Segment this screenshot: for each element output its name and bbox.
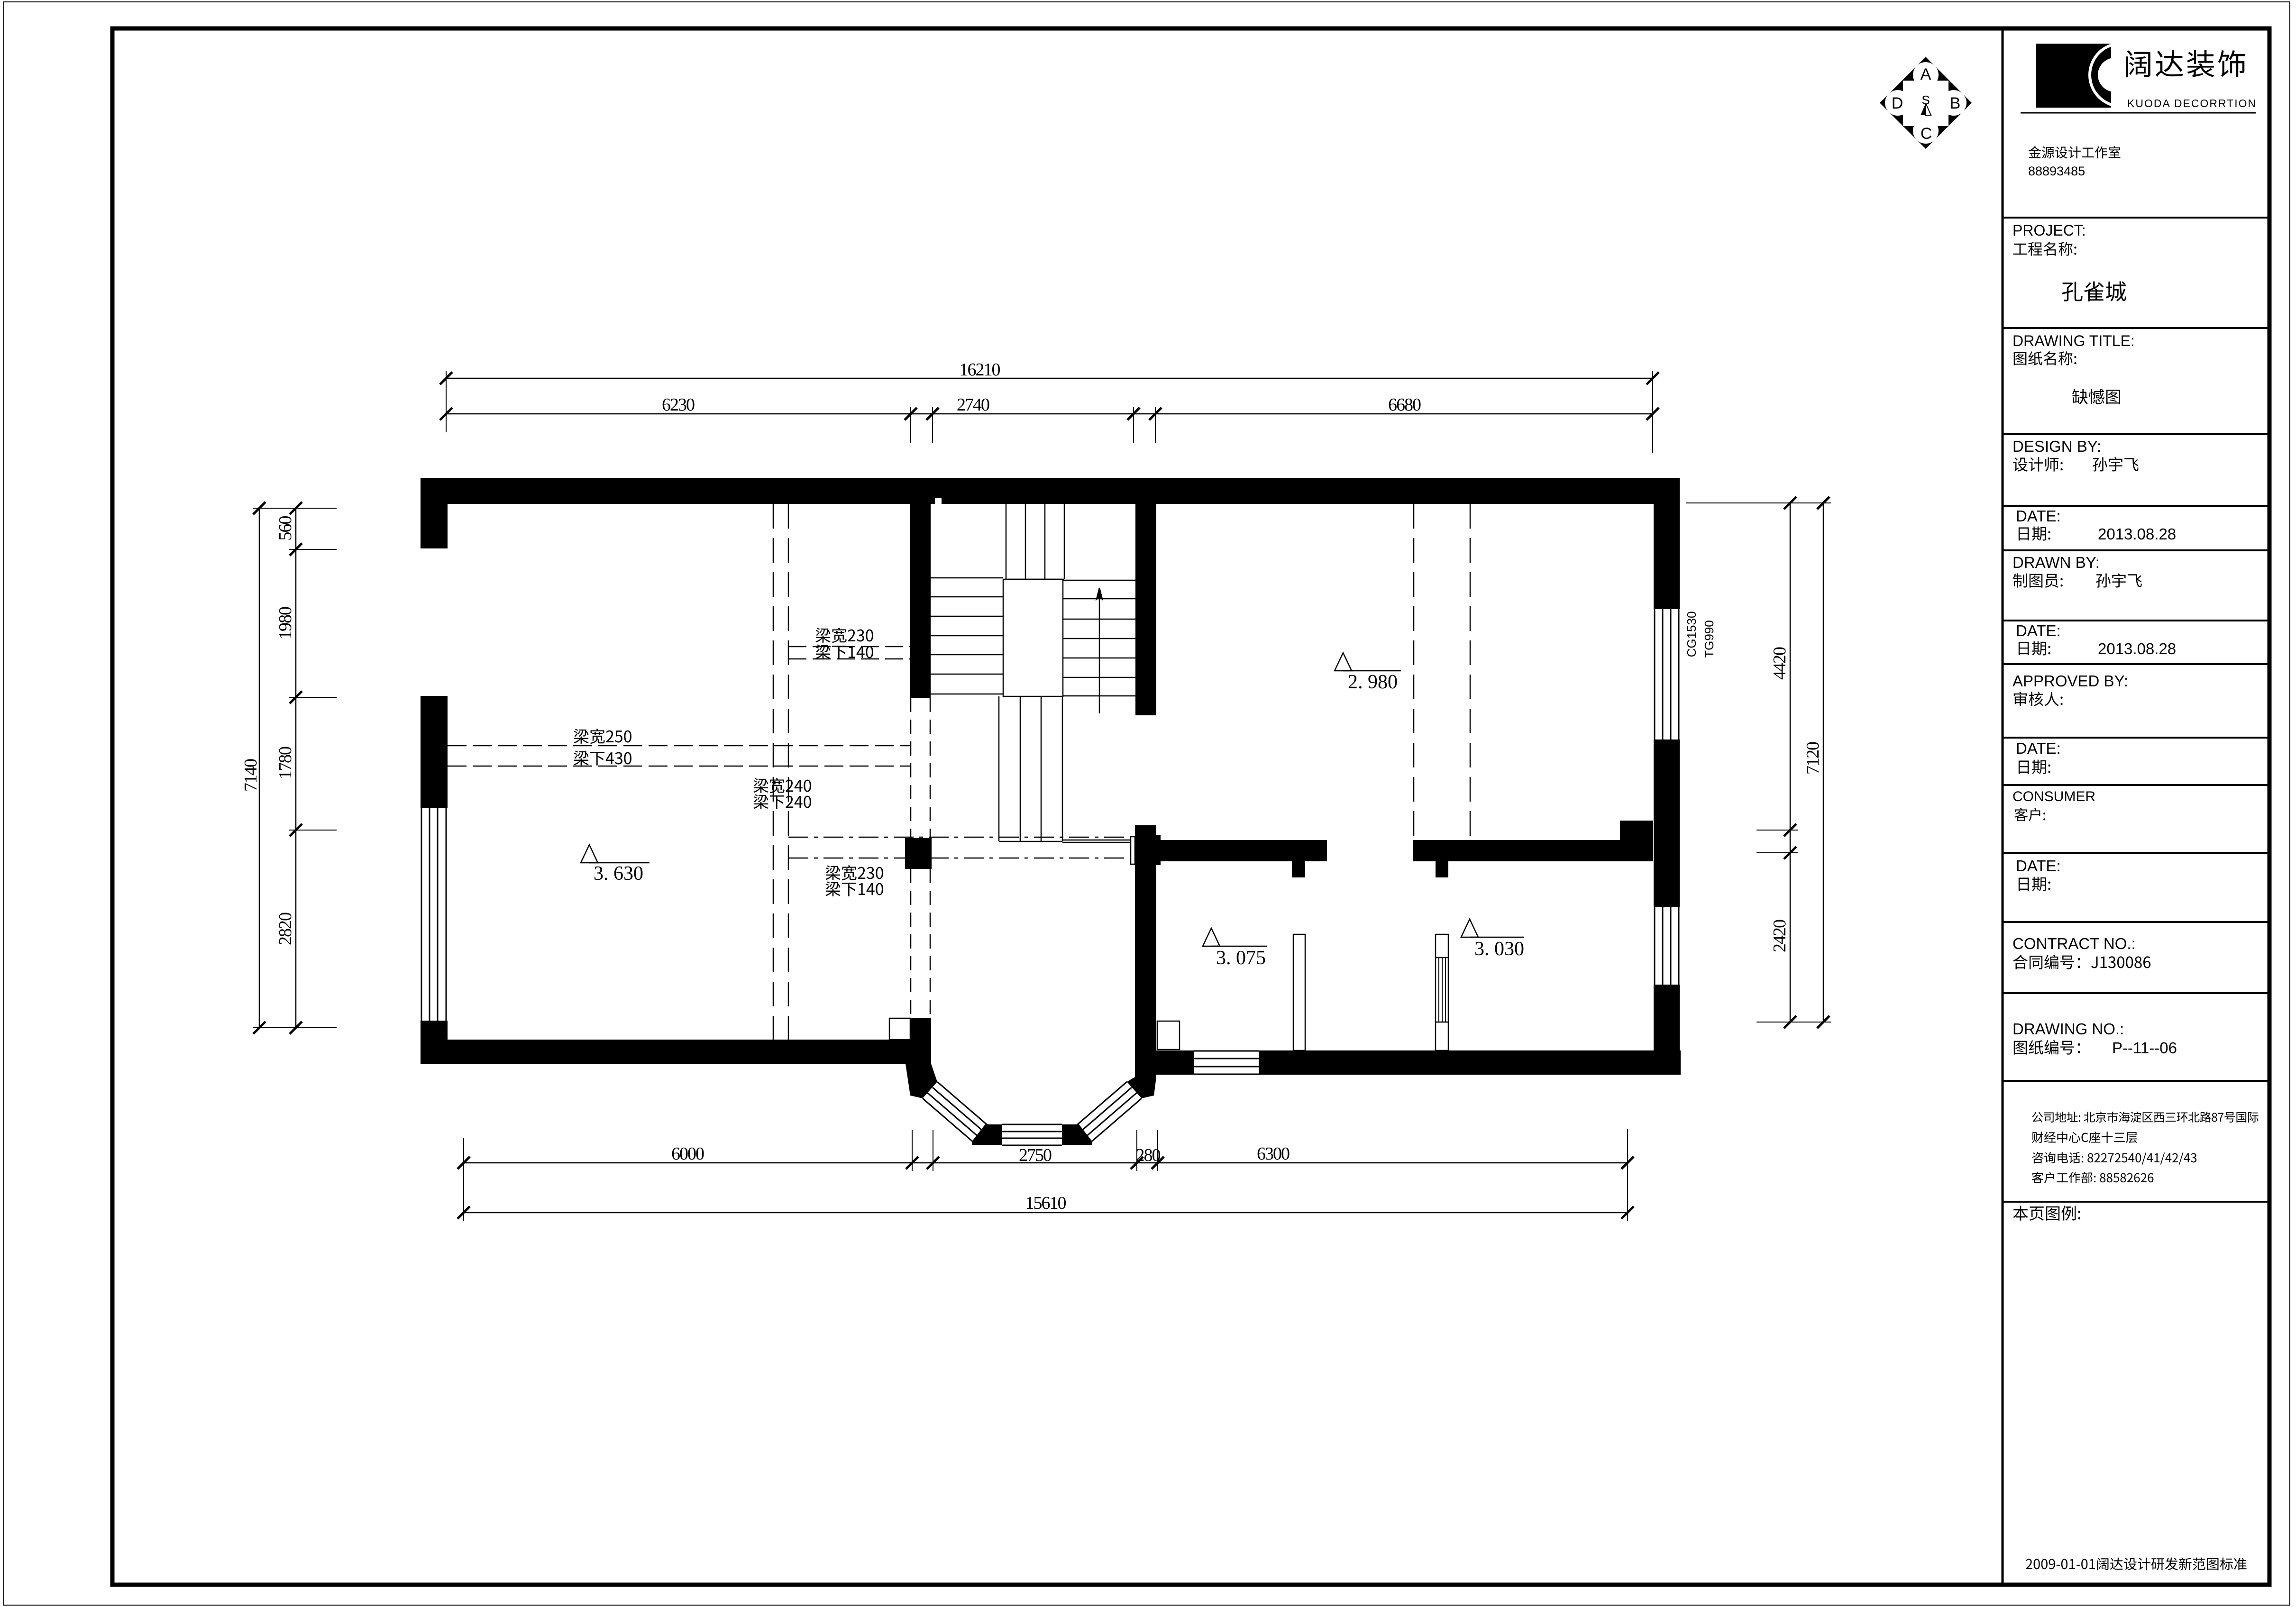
svg-text:CG1530: CG1530 [1684, 612, 1699, 657]
svg-text:CONSUMER: CONSUMER [2012, 789, 2095, 804]
svg-text:1780: 1780 [275, 747, 295, 779]
svg-text:DATE:: DATE: [2016, 857, 2061, 875]
svg-text:PROJECT:: PROJECT: [2012, 222, 2086, 239]
svg-text:C: C [1921, 125, 1932, 143]
svg-text:3. 030: 3. 030 [1474, 938, 1524, 960]
svg-text:3. 075: 3. 075 [1216, 947, 1266, 969]
svg-text:2750: 2750 [1019, 1145, 1052, 1165]
svg-text:280: 280 [1136, 1145, 1161, 1165]
svg-text:88893485: 88893485 [2028, 164, 2085, 178]
svg-text:DATE:: DATE: [2016, 740, 2061, 757]
svg-text:KUODA DECORRTION: KUODA DECORRTION [2127, 97, 2257, 110]
svg-text:DESIGN BY:: DESIGN BY: [2012, 438, 2101, 455]
svg-text:DATE:: DATE: [2016, 622, 2061, 639]
svg-text:6230: 6230 [662, 395, 695, 415]
svg-text:TG990: TG990 [1702, 620, 1716, 658]
svg-text:7120: 7120 [1803, 742, 1823, 775]
svg-text:2013.08.28: 2013.08.28 [2098, 640, 2176, 657]
svg-text:B: B [1950, 94, 1961, 112]
svg-text:1980: 1980 [275, 607, 295, 639]
svg-text:D: D [1892, 94, 1903, 112]
svg-text:A: A [1921, 65, 1931, 83]
svg-text:560: 560 [275, 516, 295, 541]
svg-text:2820: 2820 [275, 913, 295, 945]
svg-text:APPROVED BY:: APPROVED BY: [2012, 672, 2128, 690]
svg-text:3. 630: 3. 630 [594, 863, 643, 885]
svg-text:16210: 16210 [960, 360, 1000, 380]
svg-text:2. 980: 2. 980 [1348, 671, 1398, 693]
svg-text:6300: 6300 [1257, 1144, 1290, 1164]
svg-text:7140: 7140 [241, 759, 261, 792]
svg-text:6000: 6000 [671, 1144, 704, 1164]
svg-text:15610: 15610 [1025, 1193, 1066, 1213]
svg-text:2740: 2740 [957, 395, 989, 415]
svg-text:2013.08.28: 2013.08.28 [2098, 525, 2176, 543]
svg-text:CONTRACT NO.:: CONTRACT NO.: [2012, 935, 2136, 952]
svg-text:DRAWING TITLE:: DRAWING TITLE: [2012, 332, 2135, 349]
svg-text:DRAWING NO.:: DRAWING NO.: [2012, 1020, 2124, 1038]
svg-text:6680: 6680 [1388, 395, 1421, 415]
svg-text:DATE:: DATE: [2016, 507, 2061, 525]
svg-text:4420: 4420 [1770, 647, 1790, 680]
svg-text:P--11--06: P--11--06 [2112, 1039, 2177, 1057]
svg-text:DRAWN BY:: DRAWN BY: [2012, 554, 2100, 571]
svg-text:2420: 2420 [1770, 920, 1790, 952]
